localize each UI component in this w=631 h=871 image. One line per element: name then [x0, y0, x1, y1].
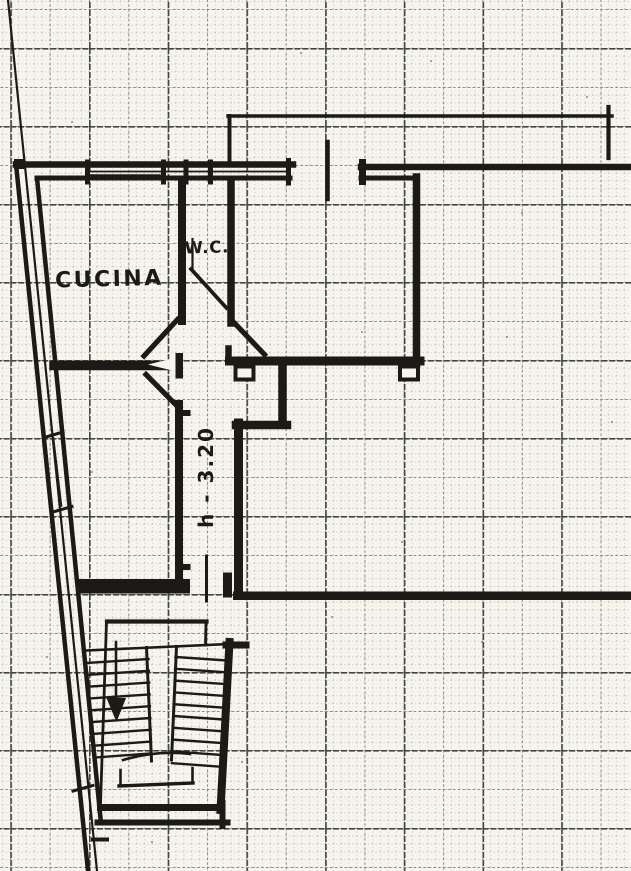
height-note-label: h - 3.20 — [194, 426, 218, 528]
long-wall-right — [233, 592, 631, 601]
wall-end-cap — [176, 353, 184, 379]
corridor-left-wall-nub-top — [183, 410, 191, 416]
kitchen-label: CUCINA — [55, 266, 164, 294]
scanned-floor-plan-sheet: CUCINA W.C. h - 3.20 — [0, 0, 631, 871]
pillar-left — [236, 367, 254, 380]
wc-label: W.C. — [184, 237, 229, 257]
stair-landing-right-edge — [206, 622, 207, 645]
corridor-bottom-wall-left — [78, 579, 190, 594]
corridor-left-wall-nub-bottom — [183, 564, 191, 570]
floor-plan-drawing: CUCINA W.C. h - 3.20 — [0, 0, 631, 871]
pillar-right — [400, 367, 418, 380]
